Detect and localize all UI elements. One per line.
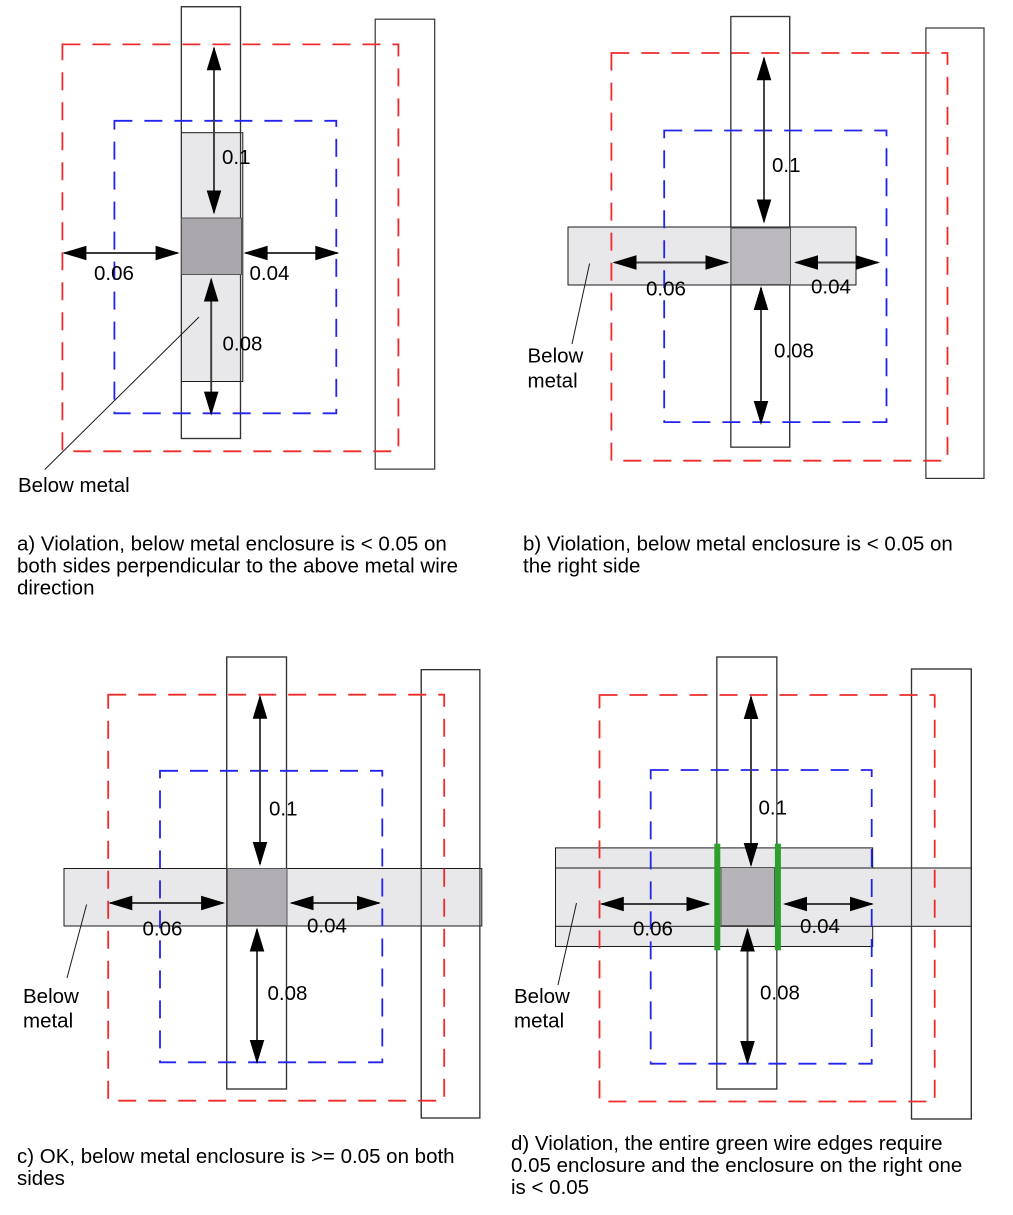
svg-text:0.08: 0.08 [760,982,800,1005]
svg-text:0.1: 0.1 [759,797,788,820]
svg-text:0.06: 0.06 [646,278,686,301]
svg-text:0.06: 0.06 [143,918,183,941]
svg-text:0.1: 0.1 [222,146,251,169]
svg-text:Below: Below [23,985,79,1008]
svg-text:the right side: the right side [523,555,640,578]
svg-text:0.08: 0.08 [774,340,814,363]
svg-text:0.04: 0.04 [800,915,840,938]
svg-text:0.05 enclosure and the enclosu: 0.05 enclosure and the enclosure on the … [511,1154,962,1177]
svg-text:0.04: 0.04 [250,262,290,285]
svg-text:0.04: 0.04 [811,276,851,299]
svg-text:metal: metal [23,1010,73,1033]
svg-text:Below metal: Below metal [18,474,130,497]
svg-text:Below: Below [514,985,570,1008]
svg-text:metal: metal [514,1010,564,1033]
svg-text:0.08: 0.08 [268,982,308,1005]
svg-text:b) Violation, below metal encl: b) Violation, below metal enclosure is <… [523,533,953,556]
svg-text:a) Violation, below metal encl: a) Violation, below metal enclosure is <… [17,533,447,556]
svg-text:direction: direction [17,577,95,600]
svg-text:0.06: 0.06 [94,262,134,285]
svg-text:both sides perpendicular to th: both sides perpendicular to the above me… [17,555,458,578]
svg-text:d) Violation, the entire green: d) Violation, the entire green wire edge… [511,1132,943,1155]
svg-text:metal: metal [528,370,578,393]
svg-text:0.06: 0.06 [633,918,673,941]
svg-text:sides: sides [17,1167,65,1190]
svg-text:Below: Below [528,345,584,368]
svg-text:0.1: 0.1 [269,798,298,821]
svg-text:0.08: 0.08 [223,333,263,356]
svg-text:is < 0.05: is < 0.05 [511,1176,589,1199]
svg-text:c) OK, below metal enclosure i: c) OK, below metal enclosure is >= 0.05 … [17,1145,455,1168]
svg-text:0.04: 0.04 [307,915,347,938]
svg-text:0.1: 0.1 [772,154,801,177]
